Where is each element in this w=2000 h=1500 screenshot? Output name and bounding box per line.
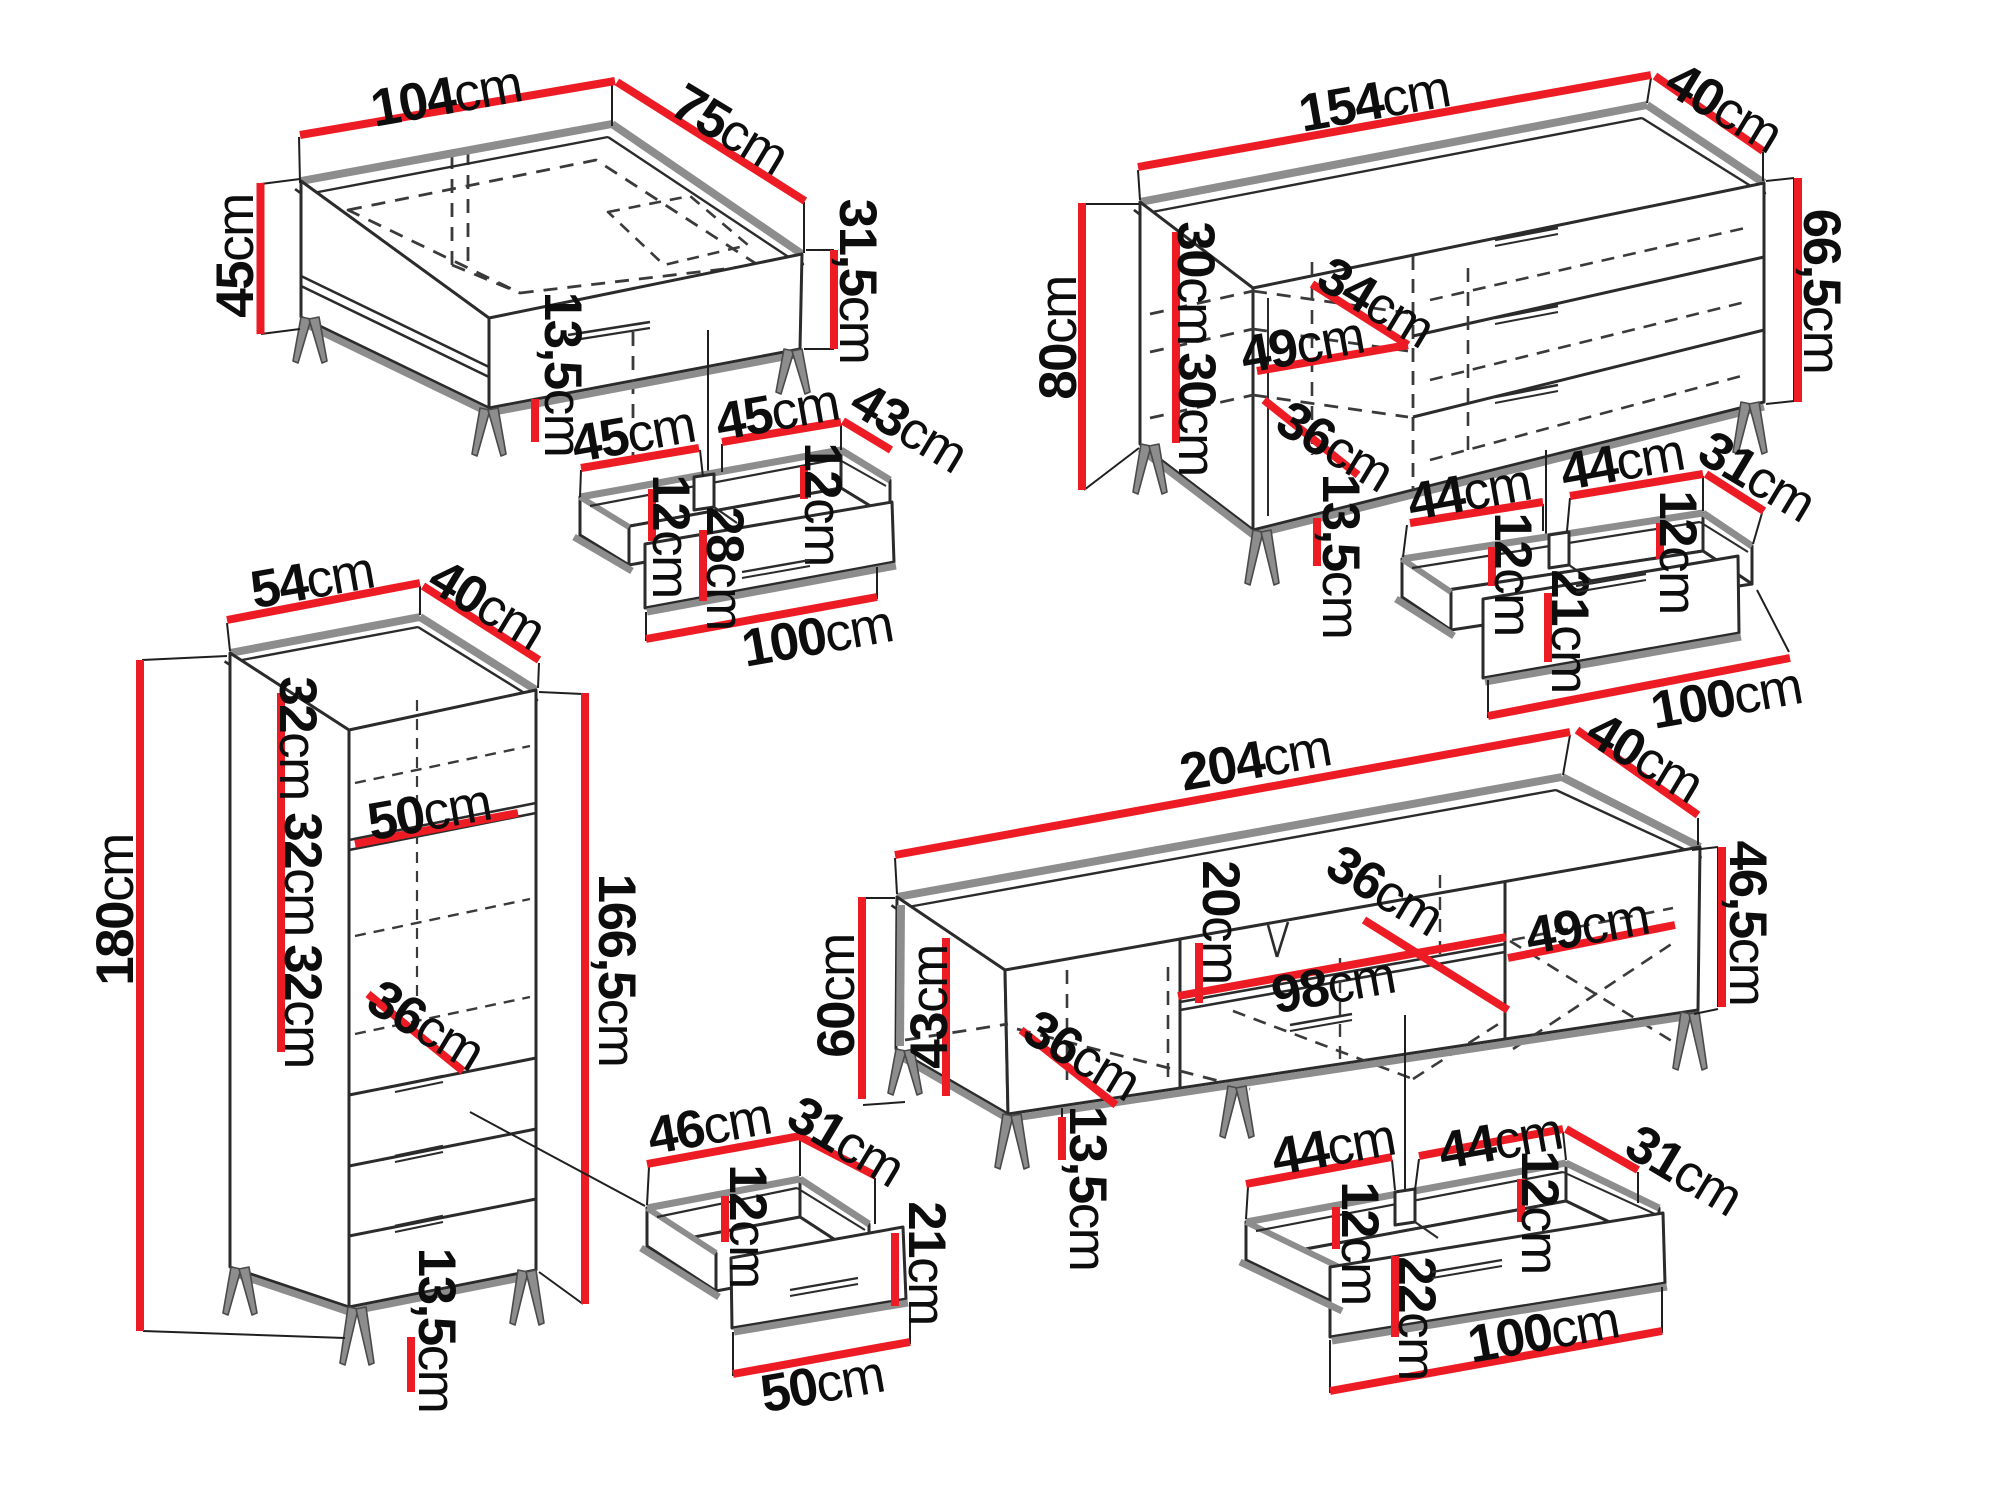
svg-text:12cm: 12cm — [1484, 512, 1543, 636]
svg-text:180cm: 180cm — [86, 834, 145, 986]
svg-text:80cm: 80cm — [1029, 276, 1088, 400]
svg-text:20cm: 20cm — [1192, 860, 1251, 984]
svg-text:43cm: 43cm — [900, 945, 959, 1069]
svg-text:31,5cm: 31,5cm — [829, 199, 888, 364]
svg-text:166,5cm: 166,5cm — [588, 874, 647, 1067]
svg-text:32cm: 32cm — [274, 812, 333, 936]
svg-text:21cm: 21cm — [1541, 569, 1600, 693]
svg-text:12cm: 12cm — [794, 442, 853, 566]
svg-text:30cm: 30cm — [1167, 221, 1226, 345]
svg-text:45cm: 45cm — [206, 194, 265, 318]
svg-text:12cm: 12cm — [1331, 1181, 1390, 1305]
svg-text:13,5cm: 13,5cm — [408, 1248, 467, 1413]
svg-text:28cm: 28cm — [696, 506, 755, 630]
svg-text:13,5cm: 13,5cm — [1312, 474, 1371, 639]
svg-text:32cm: 32cm — [274, 944, 333, 1068]
svg-text:21cm: 21cm — [898, 1201, 957, 1325]
svg-text:22cm: 22cm — [1388, 1256, 1447, 1380]
svg-text:12cm: 12cm — [719, 1164, 778, 1288]
svg-text:60cm: 60cm — [807, 934, 866, 1058]
svg-text:12cm: 12cm — [1511, 1150, 1570, 1274]
svg-text:12cm: 12cm — [642, 474, 701, 598]
svg-text:66,5cm: 66,5cm — [1793, 209, 1852, 374]
svg-text:30cm: 30cm — [1168, 352, 1227, 476]
svg-text:46,5cm: 46,5cm — [1719, 841, 1778, 1006]
svg-text:13,5cm: 13,5cm — [1059, 1106, 1118, 1271]
svg-text:12cm: 12cm — [1649, 490, 1708, 614]
svg-text:32cm: 32cm — [269, 676, 328, 800]
